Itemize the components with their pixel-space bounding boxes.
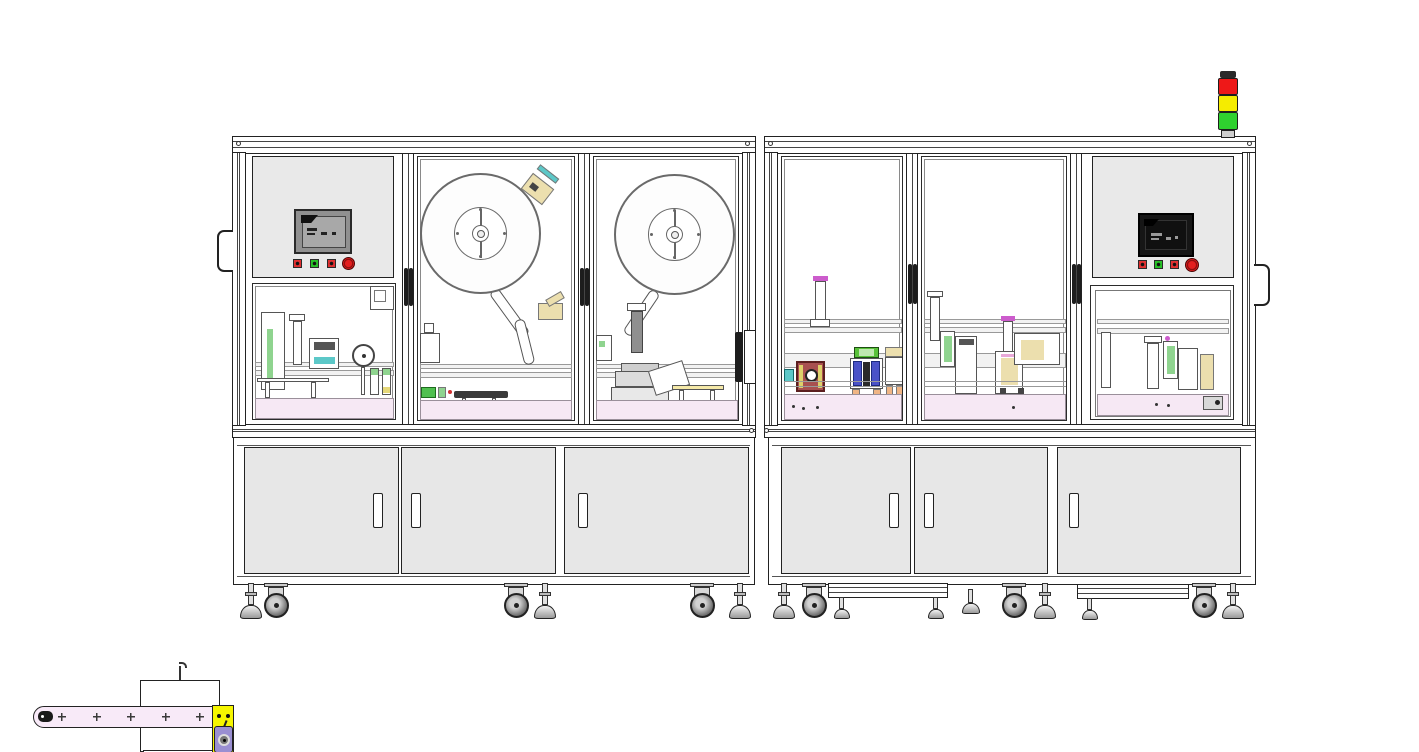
leveling-foot	[1222, 583, 1244, 620]
frame-screw	[749, 428, 754, 433]
guide-line	[784, 386, 902, 387]
left-enclosure-top-rail	[232, 136, 756, 154]
screen-text-mark	[1166, 237, 1171, 240]
hmi-screen-left	[302, 216, 346, 248]
cabinet-bottom-line	[237, 576, 750, 577]
slide-green-strip	[944, 336, 952, 362]
leveling-foot	[729, 583, 751, 620]
support-foot	[834, 597, 850, 621]
screen-corner-mark	[1144, 219, 1159, 226]
pressure-gauge	[352, 344, 375, 367]
side-unit	[420, 333, 440, 363]
frl-cap	[383, 369, 390, 375]
corner-bracket-step	[374, 290, 386, 302]
motor-shaft	[223, 739, 226, 742]
frame-screw	[1247, 141, 1252, 146]
caster-wheel	[1000, 583, 1028, 621]
belt-marker	[58, 713, 66, 721]
leveling-foot	[534, 583, 556, 620]
cylinder-cap	[1144, 336, 1162, 343]
filter-regulator-bowl	[370, 368, 379, 395]
machine-base-plate	[596, 400, 738, 420]
gauge-needle-hub	[362, 354, 366, 358]
leveling-foot	[1034, 583, 1056, 620]
frame-screw	[745, 141, 750, 146]
cabinet-door-handle	[411, 493, 421, 528]
gripper-module	[850, 347, 883, 396]
window-bay1	[252, 283, 396, 420]
gantry-rail	[924, 319, 1066, 324]
side-unit	[1101, 332, 1111, 388]
frame-screw	[236, 141, 241, 146]
door-latch-bar	[735, 332, 743, 382]
base-dot	[802, 407, 805, 410]
hmi-left-button-green	[310, 259, 319, 268]
base-dot	[816, 406, 819, 409]
lift-box-top	[959, 339, 974, 345]
caster-wheel	[502, 583, 530, 621]
door-hinge	[580, 268, 584, 306]
door-latch-plate	[744, 330, 756, 384]
signal-tower	[1210, 68, 1250, 140]
outfeed-dot	[1215, 400, 1220, 405]
tower-base	[1221, 130, 1235, 138]
gripper-center	[863, 362, 870, 387]
sensor-hook	[179, 662, 187, 668]
indicator-dot	[448, 390, 452, 394]
cabinet-top-line	[237, 445, 750, 446]
hmi-screen-bezel-left	[294, 209, 352, 254]
hmi-screen-right	[1145, 220, 1187, 250]
tower-cap	[1220, 71, 1236, 78]
cabinet-door-handle	[1069, 493, 1079, 528]
door-hinge	[404, 268, 408, 306]
right-door-handle	[1254, 264, 1270, 306]
frl-band	[383, 387, 390, 393]
screen-text-mark	[332, 232, 336, 235]
door-hinge	[585, 268, 589, 306]
left-enclosure-left-column	[232, 152, 246, 426]
slide-green-strip	[267, 329, 273, 379]
hub-bolt	[479, 208, 482, 211]
hub-bolt	[456, 232, 459, 235]
screen-text-mark	[307, 233, 315, 235]
infeed-conveyor	[0, 330, 260, 630]
window-bay5-inner	[924, 159, 1064, 418]
gauge-stem	[361, 367, 365, 395]
leveling-foot	[240, 583, 262, 620]
cabinet-door	[564, 447, 749, 574]
bolt-dot	[226, 714, 230, 718]
door-hinge	[913, 264, 917, 304]
machine-base-plate	[255, 398, 394, 419]
window-bay6	[1090, 285, 1234, 420]
base-dot	[1167, 404, 1170, 407]
fixture-tan-inner	[1021, 340, 1044, 360]
slide-unit	[1163, 341, 1178, 379]
belt-marker	[127, 713, 135, 721]
hmi-screen-bezel-right	[1138, 213, 1194, 257]
cylinder-cap	[627, 303, 646, 311]
left-base-cabinet	[233, 437, 755, 585]
hmi-right-button-green	[1154, 260, 1163, 269]
side-block-green	[599, 341, 605, 347]
cabinet-door-handle	[889, 493, 899, 528]
hmi-right-button-red-2	[1170, 260, 1179, 269]
caster-wheel	[1190, 583, 1218, 621]
press-cap	[885, 347, 903, 357]
right-enclosure-bottom-rail	[764, 424, 1256, 438]
screen-text-mark	[1175, 236, 1178, 239]
cabinet-door	[914, 447, 1048, 574]
fixture-box	[1014, 333, 1060, 365]
hmi-left-estop-button	[342, 257, 355, 270]
frl-cap	[371, 369, 378, 375]
tan-panel	[1200, 354, 1214, 390]
hmi-right-estop-button	[1185, 258, 1199, 272]
right-base-cabinet	[768, 437, 1256, 585]
door-hinge	[409, 268, 413, 306]
door-hinge	[1077, 264, 1081, 304]
belt-drive-box	[212, 705, 234, 752]
press-module	[885, 347, 903, 396]
cylinder-cap	[289, 314, 305, 321]
air-cylinder	[815, 281, 826, 323]
leveling-foot	[773, 583, 795, 620]
press-cyan-strip	[314, 357, 335, 364]
vertical-cylinder	[631, 311, 643, 353]
outfeed-block	[1203, 396, 1223, 410]
belt-marker	[162, 713, 170, 721]
air-cylinder	[293, 321, 302, 365]
left-enclosure-right-column	[742, 152, 756, 426]
support-frame	[828, 583, 948, 598]
hub-center	[477, 230, 485, 238]
press-unit	[309, 338, 339, 369]
left-door-handle	[217, 230, 233, 272]
right-enclosure-left-column	[764, 152, 778, 426]
tower-yellow-segment	[1218, 95, 1238, 112]
guide-line	[924, 381, 1066, 382]
table-rail	[420, 364, 572, 369]
base-dot	[792, 405, 795, 408]
screen-text-mark	[307, 228, 317, 231]
cabinet-top-line	[772, 445, 1251, 446]
side-unit-top	[424, 323, 434, 333]
hub-bolt	[697, 233, 700, 236]
belt-marker	[93, 713, 101, 721]
door-hinge	[1072, 264, 1076, 304]
slide-green-strip	[1167, 346, 1175, 374]
hub-bolt	[503, 232, 506, 235]
gripper-jaw-left	[853, 361, 862, 386]
window-bay5	[921, 156, 1067, 421]
gantry-rail	[784, 327, 902, 333]
screen-text-mark	[321, 232, 327, 235]
tower-green-segment	[1218, 112, 1238, 130]
cabinet-bottom-line	[772, 576, 1251, 577]
support-frame	[1077, 584, 1189, 599]
base-dot	[1155, 403, 1158, 406]
side-block	[596, 335, 612, 361]
hmi-panel-left	[252, 156, 394, 278]
green-module	[421, 387, 436, 398]
left-enclosure-bottom-rail	[232, 424, 756, 438]
support-foot	[1082, 598, 1098, 622]
cabinet-door	[401, 447, 556, 574]
guide-line	[784, 381, 902, 382]
gantry-rail	[784, 319, 902, 324]
air-cylinder	[930, 297, 940, 341]
hmi-left-button-red-1	[293, 259, 302, 268]
machine-line-drawing	[0, 0, 1419, 752]
machine-base-plate	[420, 400, 572, 420]
track-bar	[454, 391, 508, 398]
machine-base-plate	[924, 394, 1066, 420]
cabinet-door	[1057, 447, 1241, 574]
cabinet-door-handle	[373, 493, 383, 528]
filter-regulator-bowl	[382, 368, 391, 395]
drive-motor	[214, 726, 233, 752]
gripper-cap-inner	[859, 349, 874, 356]
gantry-rail	[1097, 328, 1229, 334]
hub-bolt	[673, 209, 676, 212]
camera-strip	[818, 365, 822, 388]
guide-line	[924, 386, 1066, 387]
base-dot	[1012, 406, 1015, 409]
slide-unit	[940, 331, 955, 367]
screen-corner-mark	[301, 215, 318, 223]
caster-wheel	[800, 583, 828, 621]
caster-wheel	[262, 583, 290, 621]
bolt-dot	[217, 714, 221, 718]
press-top	[314, 342, 335, 350]
hub-bolt	[479, 255, 482, 258]
table-leg	[311, 382, 316, 398]
support-foot	[962, 589, 980, 617]
hub-bolt	[650, 233, 653, 236]
lift-box	[1178, 348, 1198, 390]
hub-bolt	[673, 256, 676, 259]
hmi-panel-right	[1092, 156, 1234, 278]
table-rail	[420, 372, 572, 378]
table-leg	[265, 382, 270, 398]
window-bay3	[593, 156, 739, 421]
cabinet-door-handle	[924, 493, 934, 528]
hub-center	[671, 231, 679, 239]
cabinet-door-handle	[578, 493, 588, 528]
window-bay2	[417, 156, 575, 421]
door-hinge	[908, 264, 912, 304]
air-cylinder	[1147, 343, 1159, 389]
gripper-jaw-right	[871, 361, 880, 386]
hmi-right-button-red-1	[1138, 260, 1147, 269]
frame-screw	[768, 141, 773, 146]
roller-pin	[41, 715, 44, 718]
camera-strip	[799, 365, 803, 388]
frame-screw	[764, 428, 769, 433]
support-foot	[928, 597, 944, 621]
belt-marker	[196, 713, 204, 721]
cylinder-base	[810, 319, 830, 327]
hmi-left-button-red-2	[327, 259, 336, 268]
belt-markers	[58, 706, 204, 728]
green-module-light	[438, 387, 446, 398]
tower-red-segment	[1218, 78, 1238, 95]
gantry-rail	[1097, 319, 1229, 324]
caster-wheel	[688, 583, 716, 621]
screen-text-mark	[1151, 233, 1162, 236]
right-enclosure-top-rail	[764, 136, 1256, 154]
screen-text-mark	[1151, 238, 1159, 240]
window-bay4	[781, 156, 903, 421]
camera-unit	[796, 361, 825, 392]
